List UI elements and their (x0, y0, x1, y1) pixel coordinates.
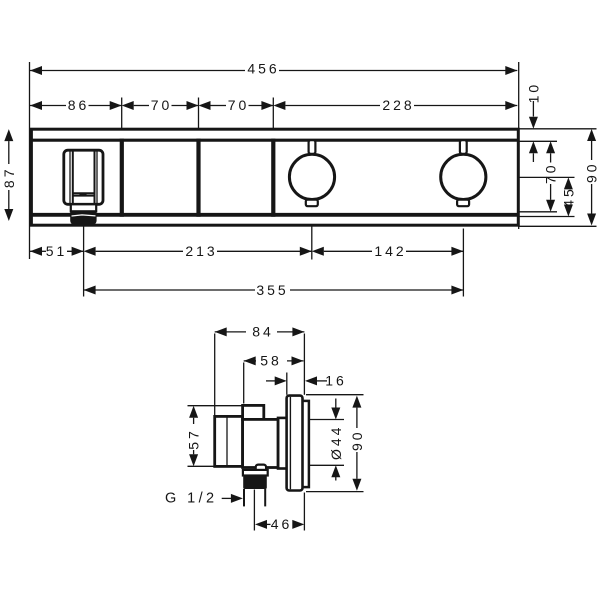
svg-text:70: 70 (151, 97, 173, 113)
svg-text:G 1/2: G 1/2 (165, 491, 217, 507)
svg-text:90: 90 (584, 161, 600, 183)
svg-text:58: 58 (260, 353, 282, 369)
svg-text:213: 213 (185, 243, 217, 259)
svg-text:87: 87 (1, 167, 17, 189)
svg-text:46: 46 (271, 516, 293, 532)
svg-text:57: 57 (186, 428, 202, 450)
svg-text:90: 90 (349, 429, 365, 451)
svg-text:228: 228 (382, 97, 414, 113)
svg-text:Ø44: Ø44 (328, 425, 344, 460)
svg-text:142: 142 (374, 243, 406, 259)
svg-text:70: 70 (543, 162, 559, 184)
svg-text:10: 10 (526, 82, 542, 104)
svg-text:456: 456 (247, 60, 279, 76)
svg-text:51: 51 (46, 243, 68, 259)
svg-text:355: 355 (256, 282, 288, 298)
svg-text:16: 16 (325, 373, 347, 389)
svg-text:86: 86 (68, 97, 90, 113)
svg-text:70: 70 (228, 97, 250, 113)
svg-text:84: 84 (252, 324, 274, 340)
svg-text:45: 45 (560, 186, 576, 208)
